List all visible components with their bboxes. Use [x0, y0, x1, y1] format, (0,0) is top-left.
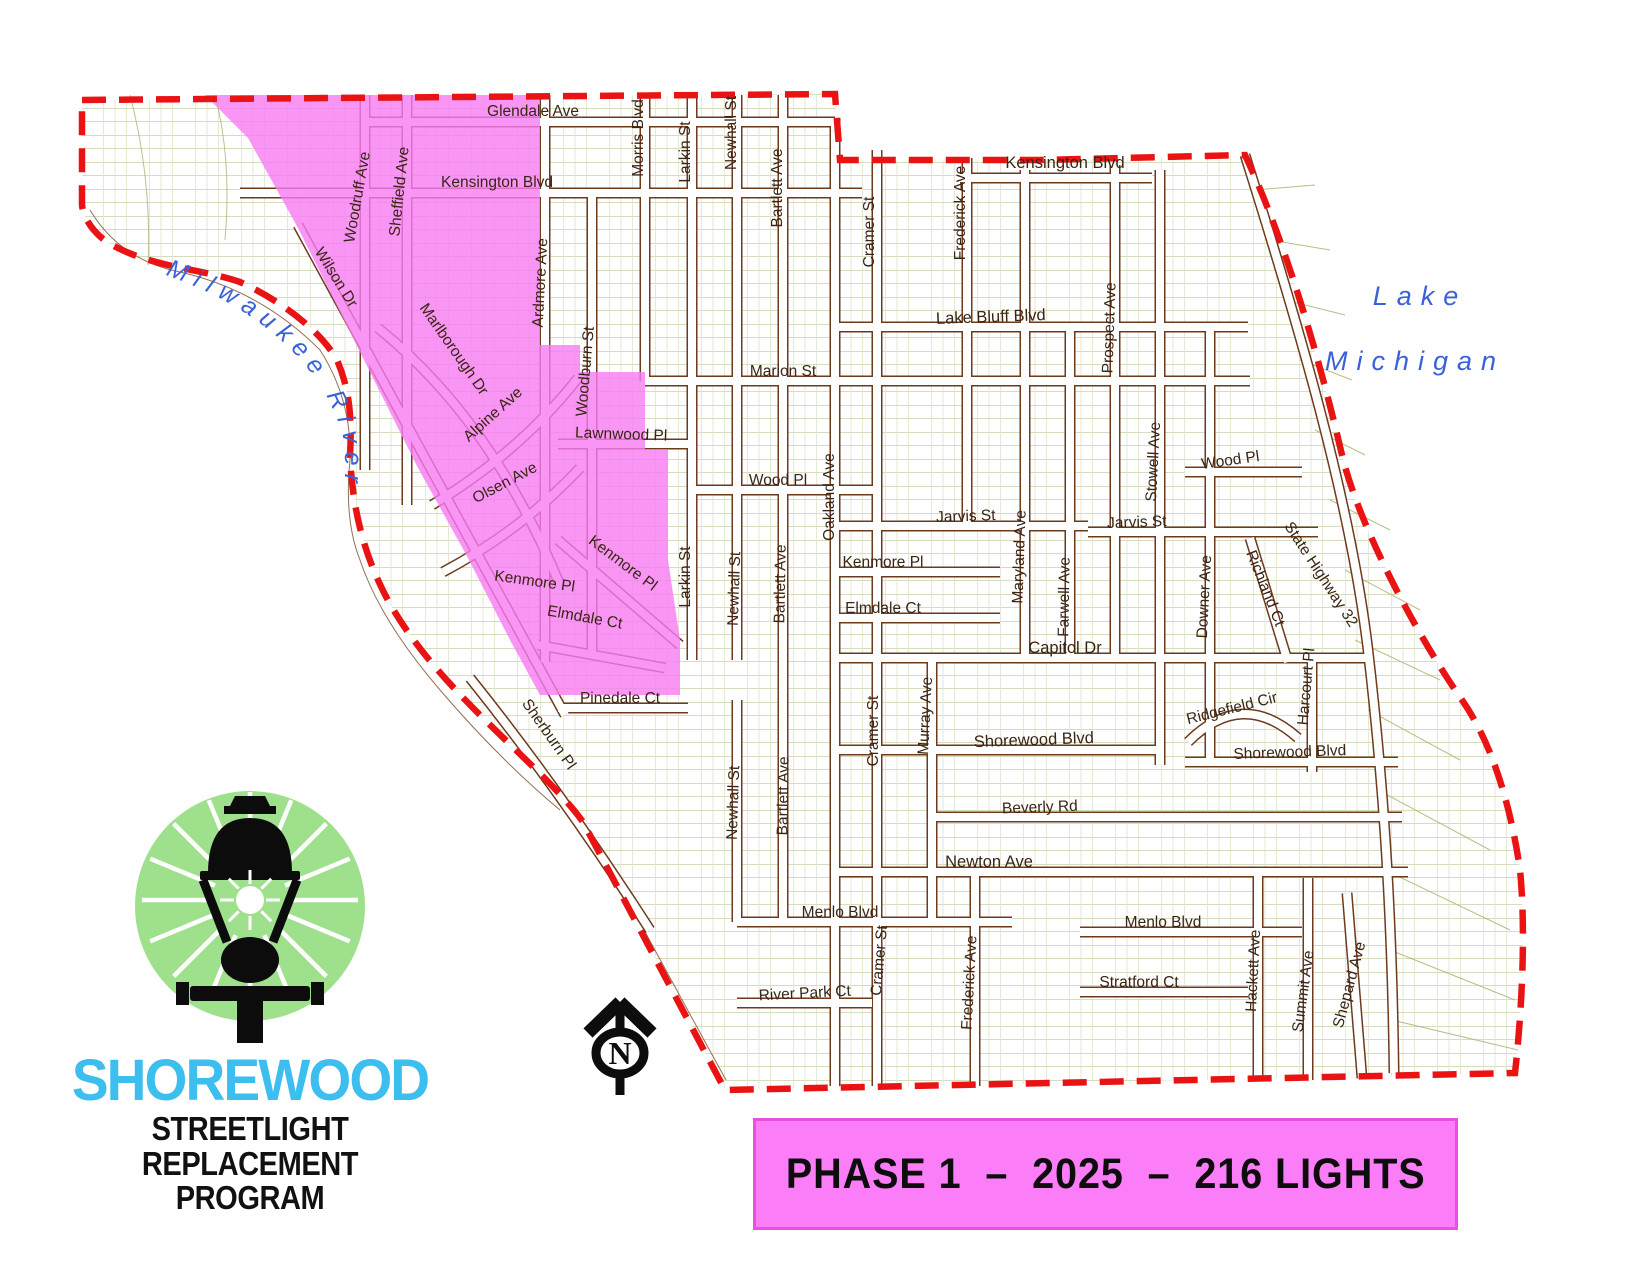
street-label-kensington-blvd-e: Kensington Blvd	[1005, 154, 1124, 172]
street-label-wood-pl-w: Wood Pl	[749, 472, 807, 489]
street-label-larkin-st-n: Larkin St	[677, 121, 694, 183]
street-label-frederick-ave-n: Frederick Ave	[952, 166, 969, 260]
street-label-bartlett-ave-s: Bartlett Ave	[774, 756, 792, 835]
phase-banner: PHASE 1 – 2025 – 216 LIGHTS	[753, 1118, 1458, 1230]
street-label-cramer-st-n: Cramer St	[861, 196, 878, 267]
street-label-farwell-ave: Farwell Ave	[1055, 557, 1073, 637]
street-label-menlo-blvd-w: Menlo Blvd	[802, 904, 879, 921]
program-wordmark: SHOREWOOD STREETLIGHT REPLACEMENT PROGRA…	[15, 1052, 485, 1216]
street-label-oakland-ave: Oakland Ave	[821, 453, 838, 541]
street-label-marion-st: Marion St	[750, 363, 817, 380]
street-label-lawnwood-pl: Lawnwood Pl	[575, 424, 668, 444]
street-label-stratford-ct: Stratford Ct	[1099, 974, 1179, 991]
lake-michigan-label-line1: Lake	[1373, 281, 1468, 311]
street-label-beverly-rd: Beverly Rd	[1002, 798, 1078, 818]
street-label-newhall-st-n: Newhall St	[723, 95, 740, 170]
shorewood-streetlight-map: Glendale Ave Kensington Blvd Morris Blvd…	[0, 0, 1650, 1275]
street-label-jarvis-st-e: Jarvis St	[1107, 513, 1168, 532]
brand-name: SHOREWOOD	[27, 1052, 474, 1110]
streetlamp-logo-icon	[135, 791, 365, 1043]
north-arrow-icon: N	[588, 1002, 652, 1095]
street-label-bartlett-ave-n: Bartlett Ave	[769, 149, 786, 228]
street-label-morris-blvd: Morris Blvd	[630, 99, 647, 177]
lamp-glow	[220, 870, 280, 930]
street-label-glendale-ave: Glendale Ave	[487, 103, 579, 120]
street-label-newhall-st-s: Newhall St	[724, 765, 744, 840]
brand-subtitle-line2: PROGRAM	[43, 1181, 457, 1216]
street-label-bartlett-ave-mid: Bartlett Ave	[771, 544, 789, 623]
lake-michigan-label-line2: Michigan	[1325, 346, 1505, 376]
street-label-larkin-st-s: Larkin St	[677, 546, 694, 608]
street-label-maryland-ave: Maryland Ave	[1009, 510, 1029, 604]
street-label-lake-bluff-blvd: Lake Bluff Blvd	[936, 306, 1046, 328]
street-label-cramer-st-mid: Cramer St	[865, 695, 882, 766]
street-label-kensington-blvd-w: Kensington Blvd	[441, 174, 553, 191]
street-label-elmdale-ct-c: Elmdale Ct	[845, 600, 921, 617]
street-label-kenmore-pl-c: Kenmore Pl	[843, 554, 924, 571]
street-label-menlo-blvd-e: Menlo Blvd	[1125, 914, 1202, 931]
street-label-pinedale-ct: Pinedale Ct	[580, 690, 661, 707]
street-label-newhall-st-mid: Newhall St	[725, 551, 745, 626]
street-label-capitol-dr: Capitol Dr	[1028, 639, 1102, 657]
street-label-newton-ave: Newton Ave	[945, 853, 1033, 871]
brand-subtitle-line1: STREETLIGHT REPLACEMENT	[43, 1112, 457, 1181]
phase-banner-text: PHASE 1 – 2025 – 216 LIGHTS	[786, 1150, 1426, 1199]
street-label-jarvis-st-w: Jarvis St	[936, 507, 997, 526]
north-arrow-n: N	[608, 1035, 631, 1071]
street-label-prospect-ave: Prospect Ave	[1099, 282, 1119, 374]
